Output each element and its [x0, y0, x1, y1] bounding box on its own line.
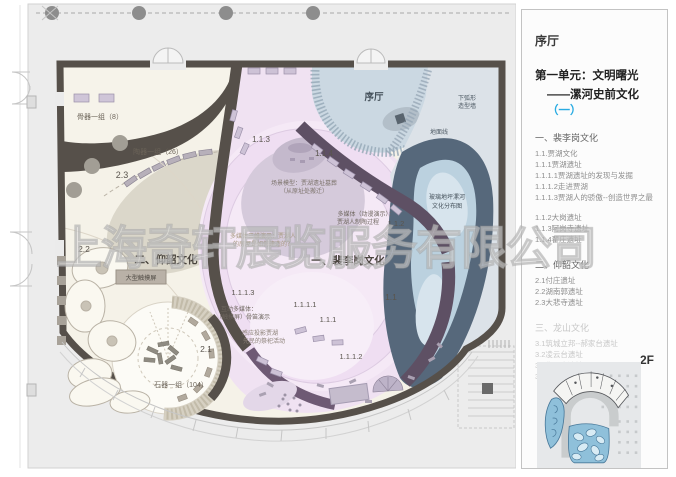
sensor-projection-label-1: 感应投影贾湖	[242, 329, 278, 337]
glass-floor-label-1: 玻璃地坪漯河	[429, 193, 465, 201]
scene-model-label-2: （从原址处搬迁）	[280, 187, 328, 195]
media3d-label-1: 多媒体三维演示：贾湖人	[230, 232, 296, 240]
legend-item: 1.1.4翟庄遗址	[535, 234, 657, 245]
zone-code-1-1-3: 1.1.3	[252, 135, 270, 144]
arc-wall-label-2: 造型墙	[458, 102, 476, 110]
legend-item: 2.3大悲寺遗址	[535, 297, 657, 308]
zone-code-1-1-1-2: 1.1.1.2	[340, 352, 363, 361]
media3d-label-2: 的房屋是如何建造的？	[233, 240, 293, 248]
floor-minimap	[537, 362, 641, 468]
legend-item: 1.1.3阿岗寺遗址	[535, 223, 657, 234]
legend-section-yangshao: 二、仰韶文化 2.1付庄遗址 2.2湖南郭遗址 2.3大悲寺遗址	[535, 258, 657, 308]
legend-item: 1.1.1.2走进贾湖	[535, 181, 657, 192]
hall-title: 序厅	[535, 32, 657, 49]
yangshao-zone-label: 二、仰韶文化	[135, 253, 198, 266]
scene-model-label-1: 场景模型：贾湖遗址墓葬	[271, 179, 337, 187]
interactive-media-label-2: （触摸屏）骨笛演示	[216, 313, 270, 321]
column-icon	[219, 6, 233, 20]
legend-item: 1.1.1.3贾湖人的骄傲--创造世界之最	[535, 192, 657, 203]
section-heading: 一、裴李岗文化	[535, 131, 657, 144]
ground-line-label: 地面线	[430, 128, 448, 136]
unit-subtitle-accent: （一）	[547, 105, 582, 117]
wall-opening	[55, 92, 64, 106]
zone-code-2-2: 2.2	[78, 244, 90, 254]
legend-item: 1.1.1贾湖遗址	[535, 159, 657, 170]
legend-item: 2.1付庄遗址	[535, 275, 657, 286]
bone-group-label: 骨器一组（8）	[77, 112, 123, 121]
zone-code-1-1-1-1: 1.1.1.1	[294, 300, 317, 309]
zone-code-1-1-2: 1.1.2	[388, 219, 405, 228]
glass-floor-label-2: 文化分布图	[432, 202, 462, 210]
wall-opening	[55, 240, 64, 258]
legend-panel: 序厅 第一单元：文明曙光 ——漯河史前文化（一） 一、裴李岗文化 1.1.贾湖文…	[521, 9, 668, 469]
section-heading: 二、仰韶文化	[535, 258, 657, 271]
pottery-group-label: 陶器一组（26）	[133, 147, 183, 156]
zone-code-2-1: 2.1	[200, 344, 212, 354]
legend-item: 2.2湖南郭遗址	[535, 286, 657, 297]
legend-item: 1.1.贾湖文化	[535, 148, 657, 159]
column-icon	[45, 6, 59, 20]
unit-subtitle: ——漯河史前文化	[547, 89, 639, 101]
legend-item: 3.2凌云台遗址	[535, 349, 657, 360]
section-heading: 三、龙山文化	[535, 321, 657, 334]
unit-title-block: 第一单元：文明曙光 ——漯河史前文化（一）	[535, 69, 657, 118]
zone-code-2-3: 2.3	[116, 170, 129, 180]
peiligang-zone-label: 一、裴李岗文化	[311, 254, 385, 267]
legend-item: 1.1.2大岗遗址	[535, 212, 657, 223]
anim-media-label-1: 多媒体（动漫演示）：	[337, 210, 394, 218]
interactive-media-label-1: 互动多媒体：	[221, 305, 257, 313]
zone-code-1-1-1-3: 1.1.1.3	[232, 288, 255, 297]
floor-plan-drawing: 骨器一组（8） 陶器一组（26） 2.3 2.2 二、仰韶文化 大型触摸屏 2.…	[0, 0, 516, 477]
column-icon	[132, 6, 146, 20]
column-icon	[306, 6, 320, 20]
sensor-projection-label-2: 先民的祭祀活动	[243, 337, 285, 345]
arc-wall-label-1: 下弧形	[458, 94, 476, 102]
zone-code-1-1-1: 1.1.1	[320, 315, 337, 324]
stair-core	[482, 383, 493, 394]
legend-item: 3.1筑城立邦--郝家台遗址	[535, 338, 657, 349]
zone-code-1-1: 1.1	[385, 292, 397, 302]
legend-item: 1.1.1.1贾湖遗址的发现与发掘	[535, 170, 657, 181]
legend-section-peiligang: 一、裴李岗文化 1.1.贾湖文化 1.1.1贾湖遗址 1.1.1.1贾湖遗址的发…	[535, 131, 657, 245]
zone-code-1-1-4: 1.1.4	[315, 149, 333, 158]
floor-label: 2F	[640, 353, 654, 367]
unit-title: 第一单元：文明曙光	[535, 69, 657, 83]
anim-media-label-2: 贾湖人制陶过程	[337, 218, 379, 226]
stone-group-label: 石器一组（104）	[154, 380, 208, 389]
touch-screen-label: 大型触摸屏	[126, 274, 157, 282]
hall-plan-label: 序厅	[364, 91, 384, 103]
